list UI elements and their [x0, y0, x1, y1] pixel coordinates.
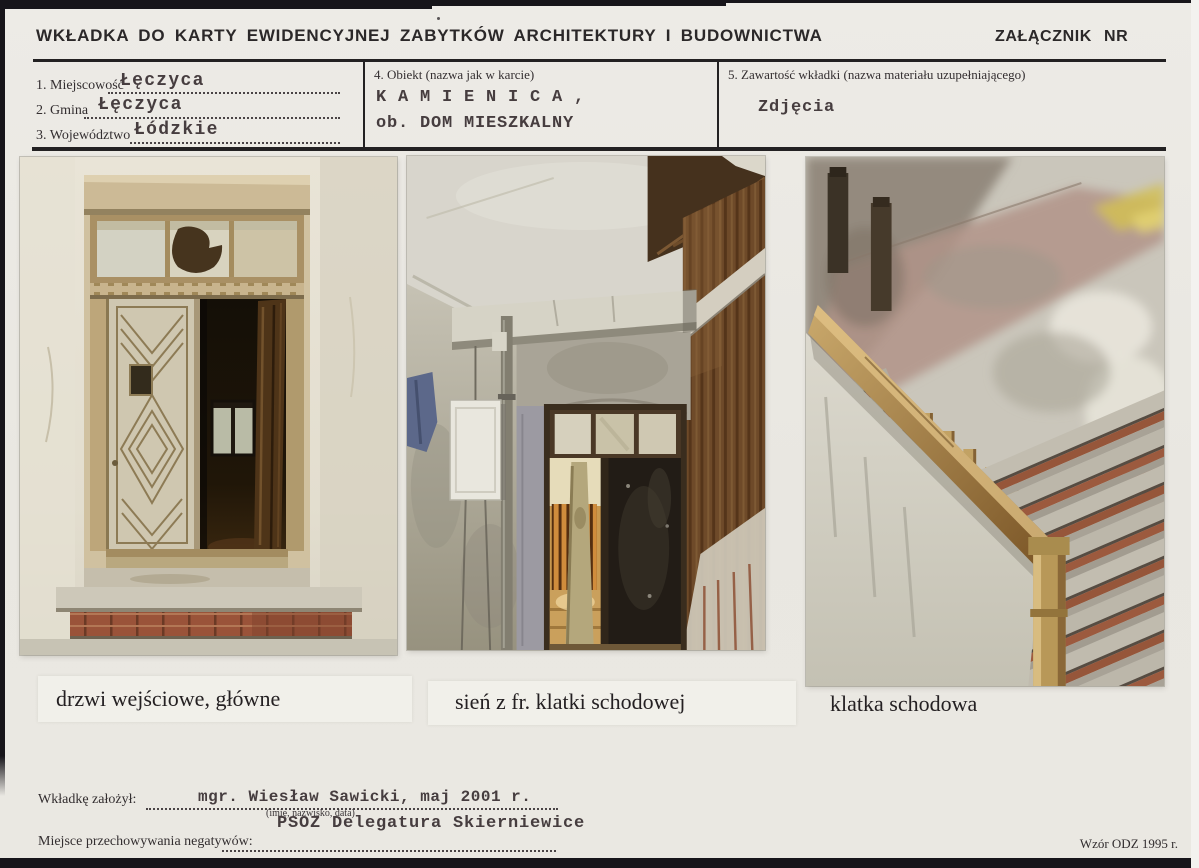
scan-speck [437, 17, 440, 20]
scan-edge-left [0, 0, 5, 756]
scan-edge-top-thicker [0, 0, 432, 9]
table-rule-top [33, 59, 1166, 62]
field-gmina-value: Łęczyca [98, 95, 183, 115]
field-obiekt-value-line1: K A M I E N I C A , [376, 88, 585, 107]
field-wojewodztwo-label: 3. Województwo [36, 128, 130, 144]
photo-caption-entrance-door: drzwi wejściowe, główne [56, 686, 280, 712]
photo-caption-hallway: sień z fr. klatki schodowej [455, 689, 685, 715]
table-rule-bottom [32, 147, 1166, 151]
field-miejscowosc-value: Łęczyca [120, 71, 205, 91]
dotted-line-gmina [84, 115, 340, 119]
table-rule-col2 [717, 59, 719, 151]
scanned-record-card: WKŁADKA DO KARTY EWIDENCYJNEJ ZABYTKÓW A… [0, 0, 1199, 868]
document-title: WKŁADKA DO KARTY EWIDENCYJNEJ ZABYTKÓW A… [36, 26, 823, 46]
form-version-note: Wzór ODZ 1995 r. [1060, 836, 1178, 852]
scan-edge-right [1191, 0, 1199, 868]
attachment-number-label: ZAŁĄCZNIK NR [995, 28, 1128, 46]
staircase-photo-image [806, 157, 1164, 686]
field-wojewodztwo-value: Łódzkie [134, 120, 219, 140]
photo-hallway [407, 156, 765, 650]
created-by-value: mgr. Wiesław Sawicki, maj 2001 r. [198, 788, 531, 806]
institution-value: PSOZ Delegatura Skierniewice [277, 814, 585, 833]
photo-entrance-door [20, 157, 397, 655]
created-by-label: Wkładkę założył: [38, 792, 136, 808]
dotted-line-wojewodztwo [130, 140, 340, 144]
scan-edge-left-fade [0, 756, 5, 796]
field-obiekt-label: 4. Obiekt (nazwa jak w karcie) [374, 67, 534, 83]
scan-edge-bottom [0, 858, 1199, 868]
table-rule-col1 [363, 59, 365, 151]
dotted-line-negatives [222, 848, 556, 852]
photo-caption-staircase: klatka schodowa [830, 691, 977, 717]
field-zawartosc-value: Zdjęcia [758, 98, 835, 117]
hallway-photo-image [407, 156, 765, 650]
field-zawartosc-label: 5. Zawartość wkładki (nazwa materiału uz… [728, 67, 1025, 83]
field-obiekt-value-line2: ob. DOM MIESZKALNY [376, 114, 574, 133]
field-gmina-label: 2. Gmina [36, 103, 88, 119]
negatives-label: Miejsce przechowywania negatywów: [38, 834, 253, 850]
entrance-door-photo-image [20, 157, 397, 655]
photo-staircase [806, 157, 1164, 686]
